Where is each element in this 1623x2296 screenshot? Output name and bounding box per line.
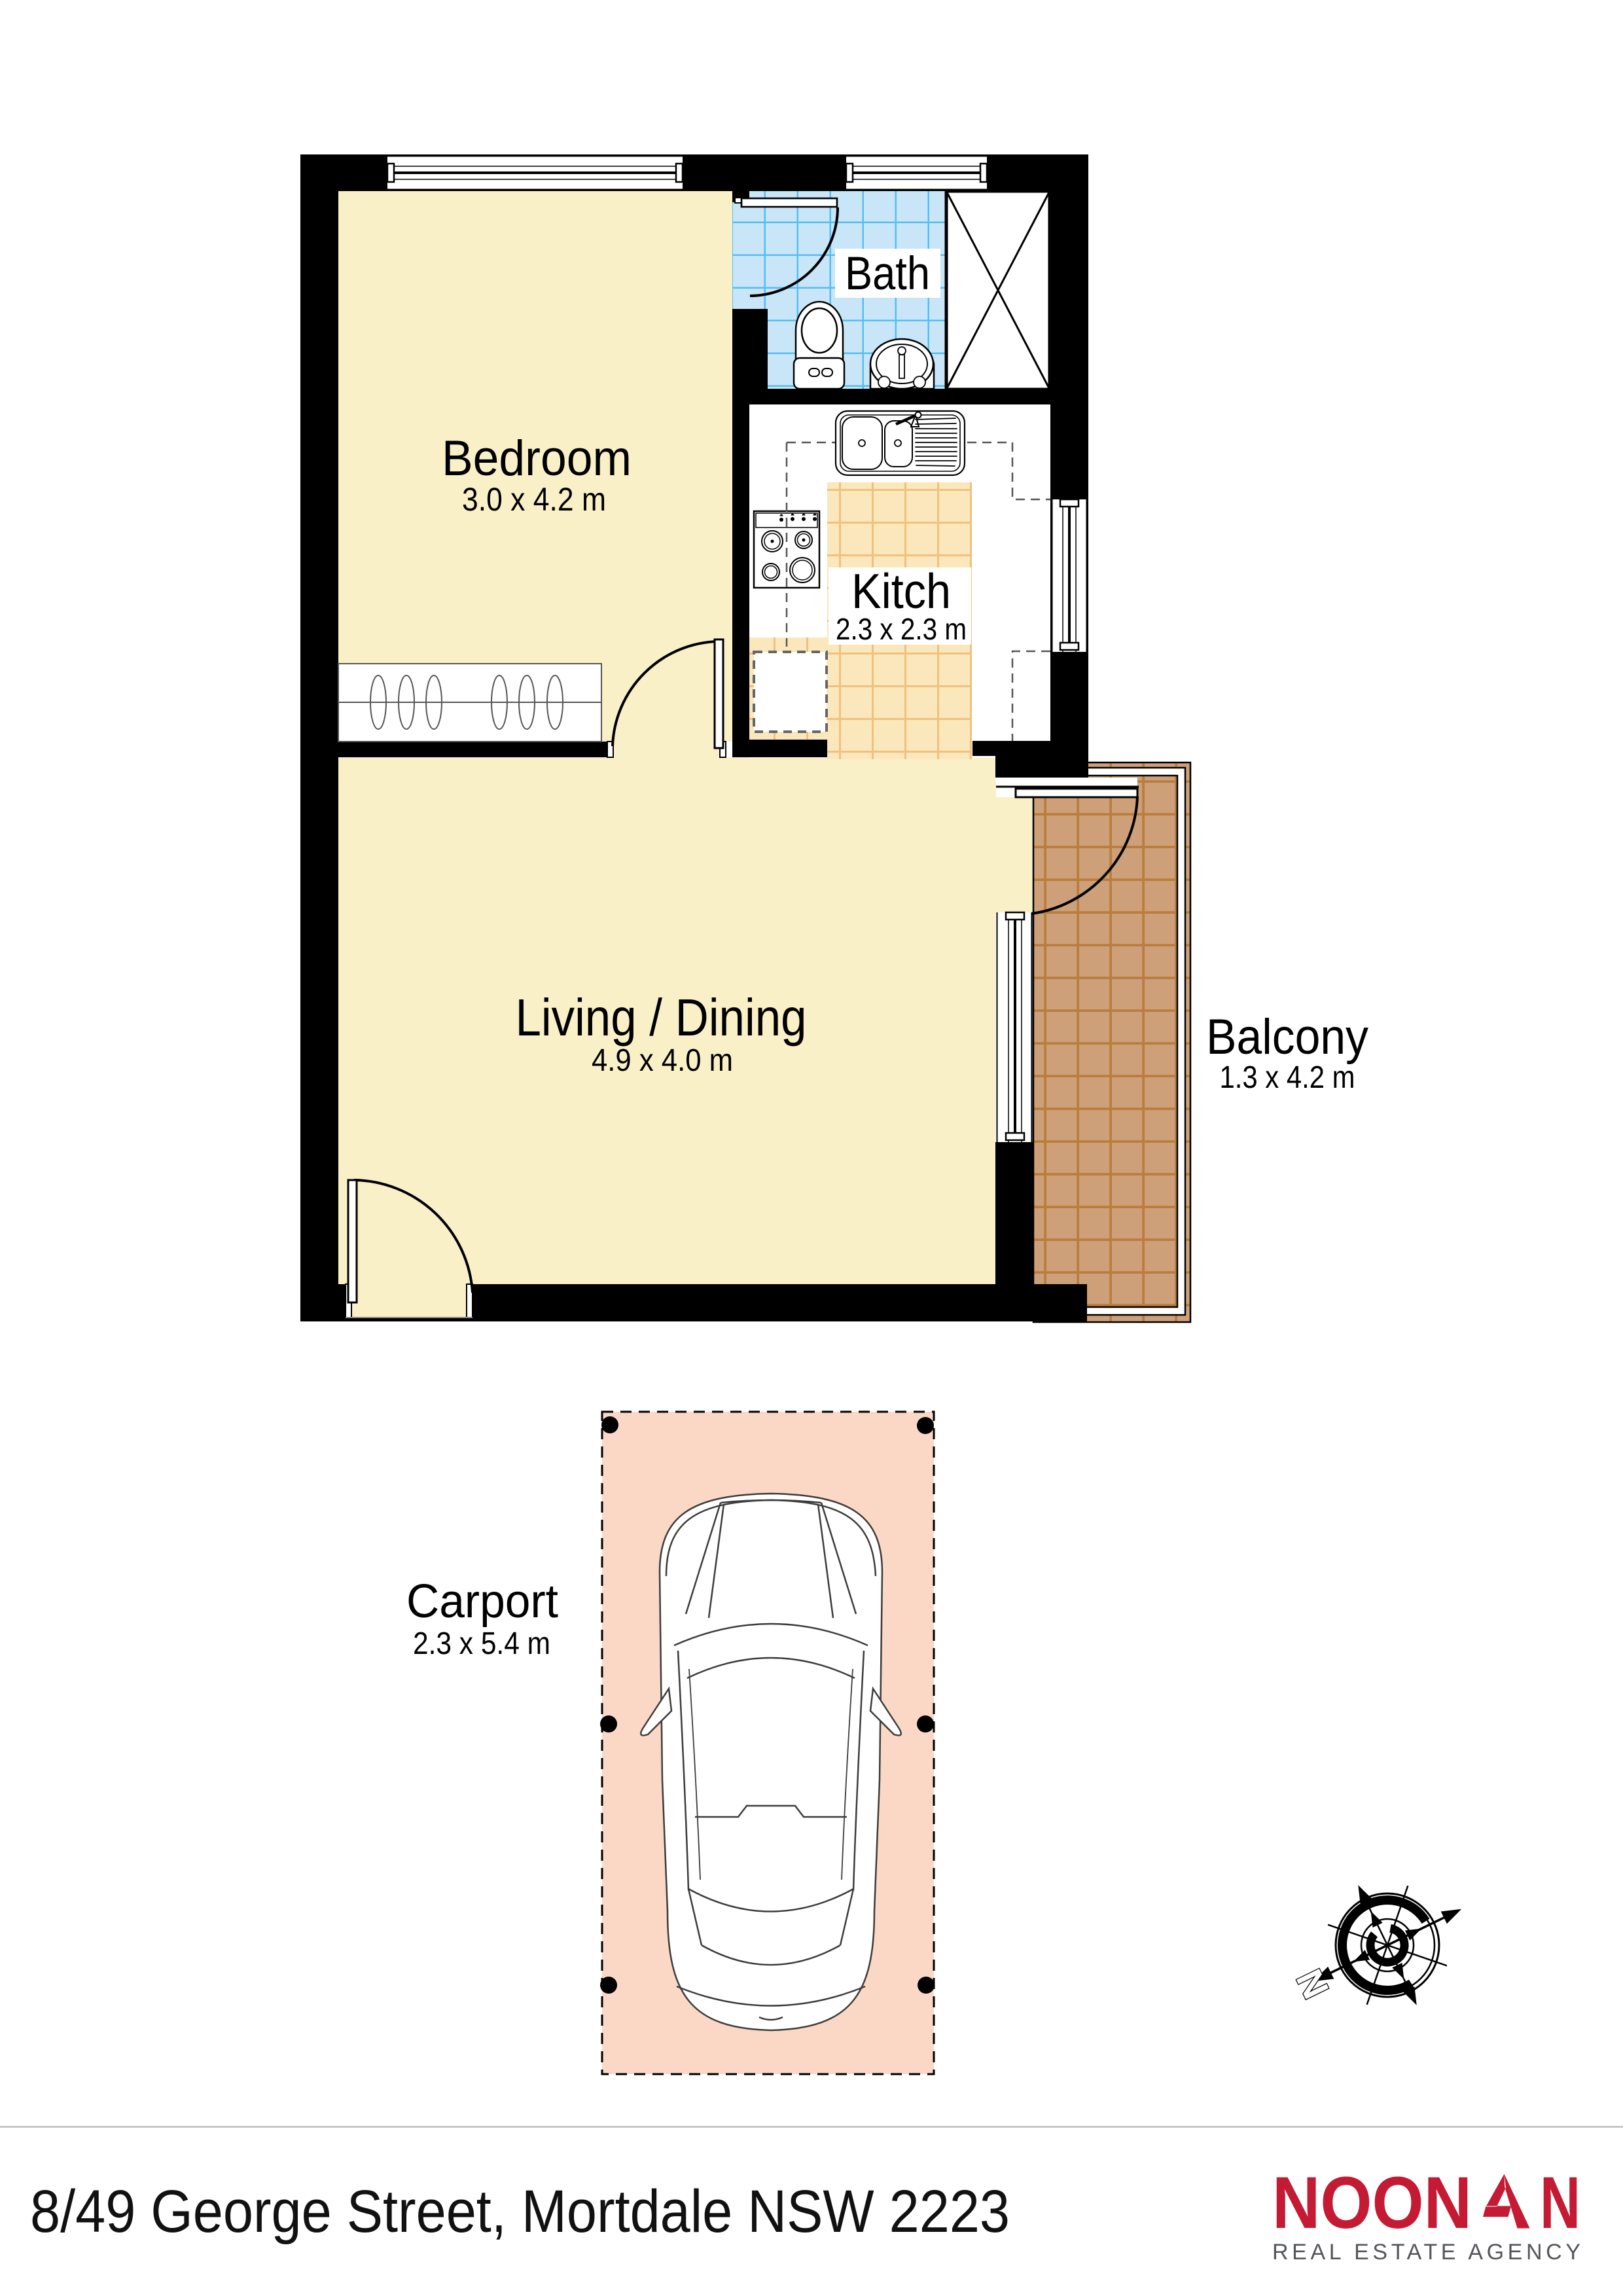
svg-text:4.9 x 4.0 m: 4.9 x 4.0 m [592,1043,733,1078]
svg-text:Bath: Bath [845,248,930,300]
svg-text:2.3 x 2.3 m: 2.3 x 2.3 m [836,612,967,646]
svg-text:REAL ESTATE AGENCY: REAL ESTATE AGENCY [1272,2240,1580,2265]
svg-text:Kitch: Kitch [851,564,951,619]
svg-text:NOON: NOON [1272,2162,1472,2244]
svg-text:3.0 x 4.2 m: 3.0 x 4.2 m [462,481,606,518]
svg-text:Bedroom: Bedroom [442,431,632,486]
svg-text:1.3 x 4.2 m: 1.3 x 4.2 m [1220,1060,1355,1095]
svg-text:8/49 George Street, Mortdale N: 8/49 George Street, Mortdale NSW 2223 [30,2178,1010,2245]
svg-text:N: N [1540,2162,1580,2244]
svg-text:Carport: Carport [406,1575,558,1628]
svg-text:Living / Dining: Living / Dining [516,988,807,1047]
svg-text:2.3 x 5.4 m: 2.3 x 5.4 m [413,1626,550,1661]
svg-text:Balcony: Balcony [1206,1009,1368,1065]
